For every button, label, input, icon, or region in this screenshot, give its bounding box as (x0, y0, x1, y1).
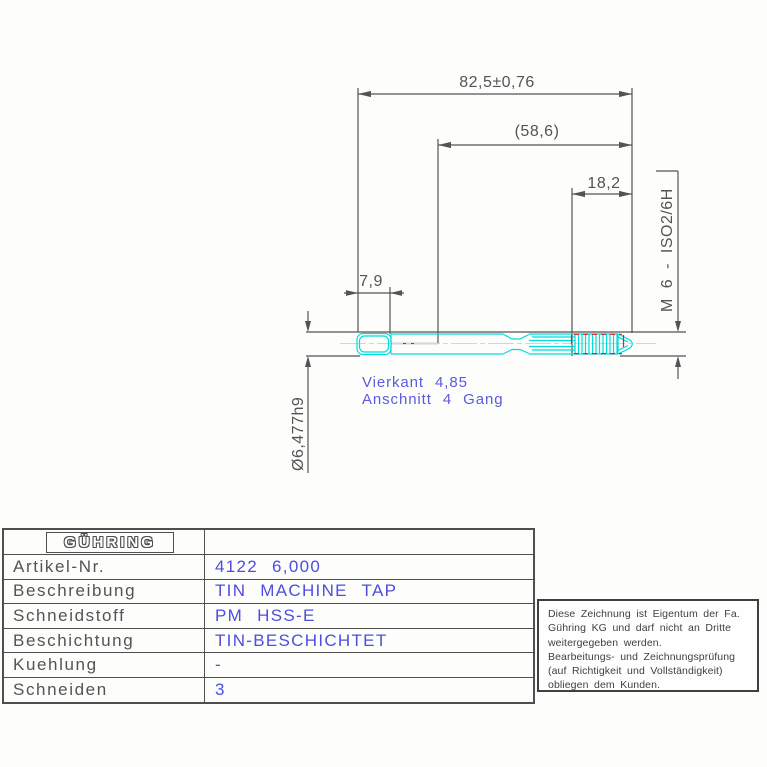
table-row: Kuehlung - (4, 652, 533, 677)
dim-thread-spec: M 6 - ISO2/6H (659, 188, 676, 312)
guehring-logo-text: GÜHRING (64, 534, 156, 551)
row-value: TIN-BESCHICHTET (204, 629, 533, 653)
table-row: Artikel-Nr. 4122 6,000 (4, 554, 533, 579)
table-row: Beschreibung TIN MACHINE TAP (4, 579, 533, 604)
table-row: Schneiden 3 (4, 677, 533, 702)
logo-cell: GÜHRING (4, 532, 204, 553)
row-value: 4122 6,000 (204, 555, 533, 579)
note-chamfer-lead: Anschnitt 4 Gang (362, 391, 503, 408)
dim-shank-diameter: Ø6,477h9 (290, 397, 307, 471)
dim-reference-length: (58,6) (515, 123, 560, 140)
row-label: Beschreibung (4, 581, 204, 601)
table-row-logo: GÜHRING (4, 530, 533, 554)
row-label: Artikel-Nr. (4, 557, 204, 577)
dim-square-length: 7,9 (359, 273, 383, 290)
row-value: 3 (204, 678, 533, 702)
row-label: Schneiden (4, 680, 204, 700)
row-value: PM HSS-E (204, 604, 533, 628)
row-value: TIN MACHINE TAP (204, 580, 533, 604)
table-row: Beschichtung TIN-BESCHICHTET (4, 628, 533, 653)
dim-overall-length: 82,5±0,76 (459, 74, 535, 91)
drawing-sheet: 82,5±0,76 (58,6) 18,2 7,9 Ø6,477h9 M 6 -… (0, 0, 767, 767)
dim-thread-length: 18,2 (587, 175, 620, 192)
disclaimer-line: Diese Zeichnung ist Eigentum der Fa. (548, 607, 755, 621)
row-label: Schneidstoff (4, 606, 204, 626)
disclaimer-line: obliegen dem Kunden. (548, 678, 755, 692)
row-label: Kuehlung (4, 655, 204, 675)
row-value: - (204, 653, 533, 677)
table-row: Schneidstoff PM HSS-E (4, 603, 533, 628)
technical-drawing: 82,5±0,76 (58,6) 18,2 7,9 Ø6,477h9 M 6 -… (0, 0, 767, 520)
disclaimer-line: weitergegeben werden. (548, 636, 755, 650)
row-label: Beschichtung (4, 631, 204, 651)
disclaimer-line: Gühring KG und darf nicht an Dritte (548, 621, 755, 635)
note-square-size: Vierkant 4,85 (362, 374, 468, 391)
logo-empty-cell (204, 530, 533, 554)
disclaimer-line: Bearbeitungs- und Zeichnungsprüfung (548, 650, 755, 664)
disclaimer-line: (auf Richtigkeit und Vollständigkeit) (548, 664, 755, 678)
part-info-table: GÜHRING Artikel-Nr. 4122 6,000 Beschreib… (2, 528, 535, 704)
guehring-logo: GÜHRING (46, 532, 174, 553)
dimension-arrowheads (305, 91, 681, 367)
ownership-disclaimer: Diese Zeichnung ist Eigentum der Fa. Güh… (537, 599, 759, 692)
